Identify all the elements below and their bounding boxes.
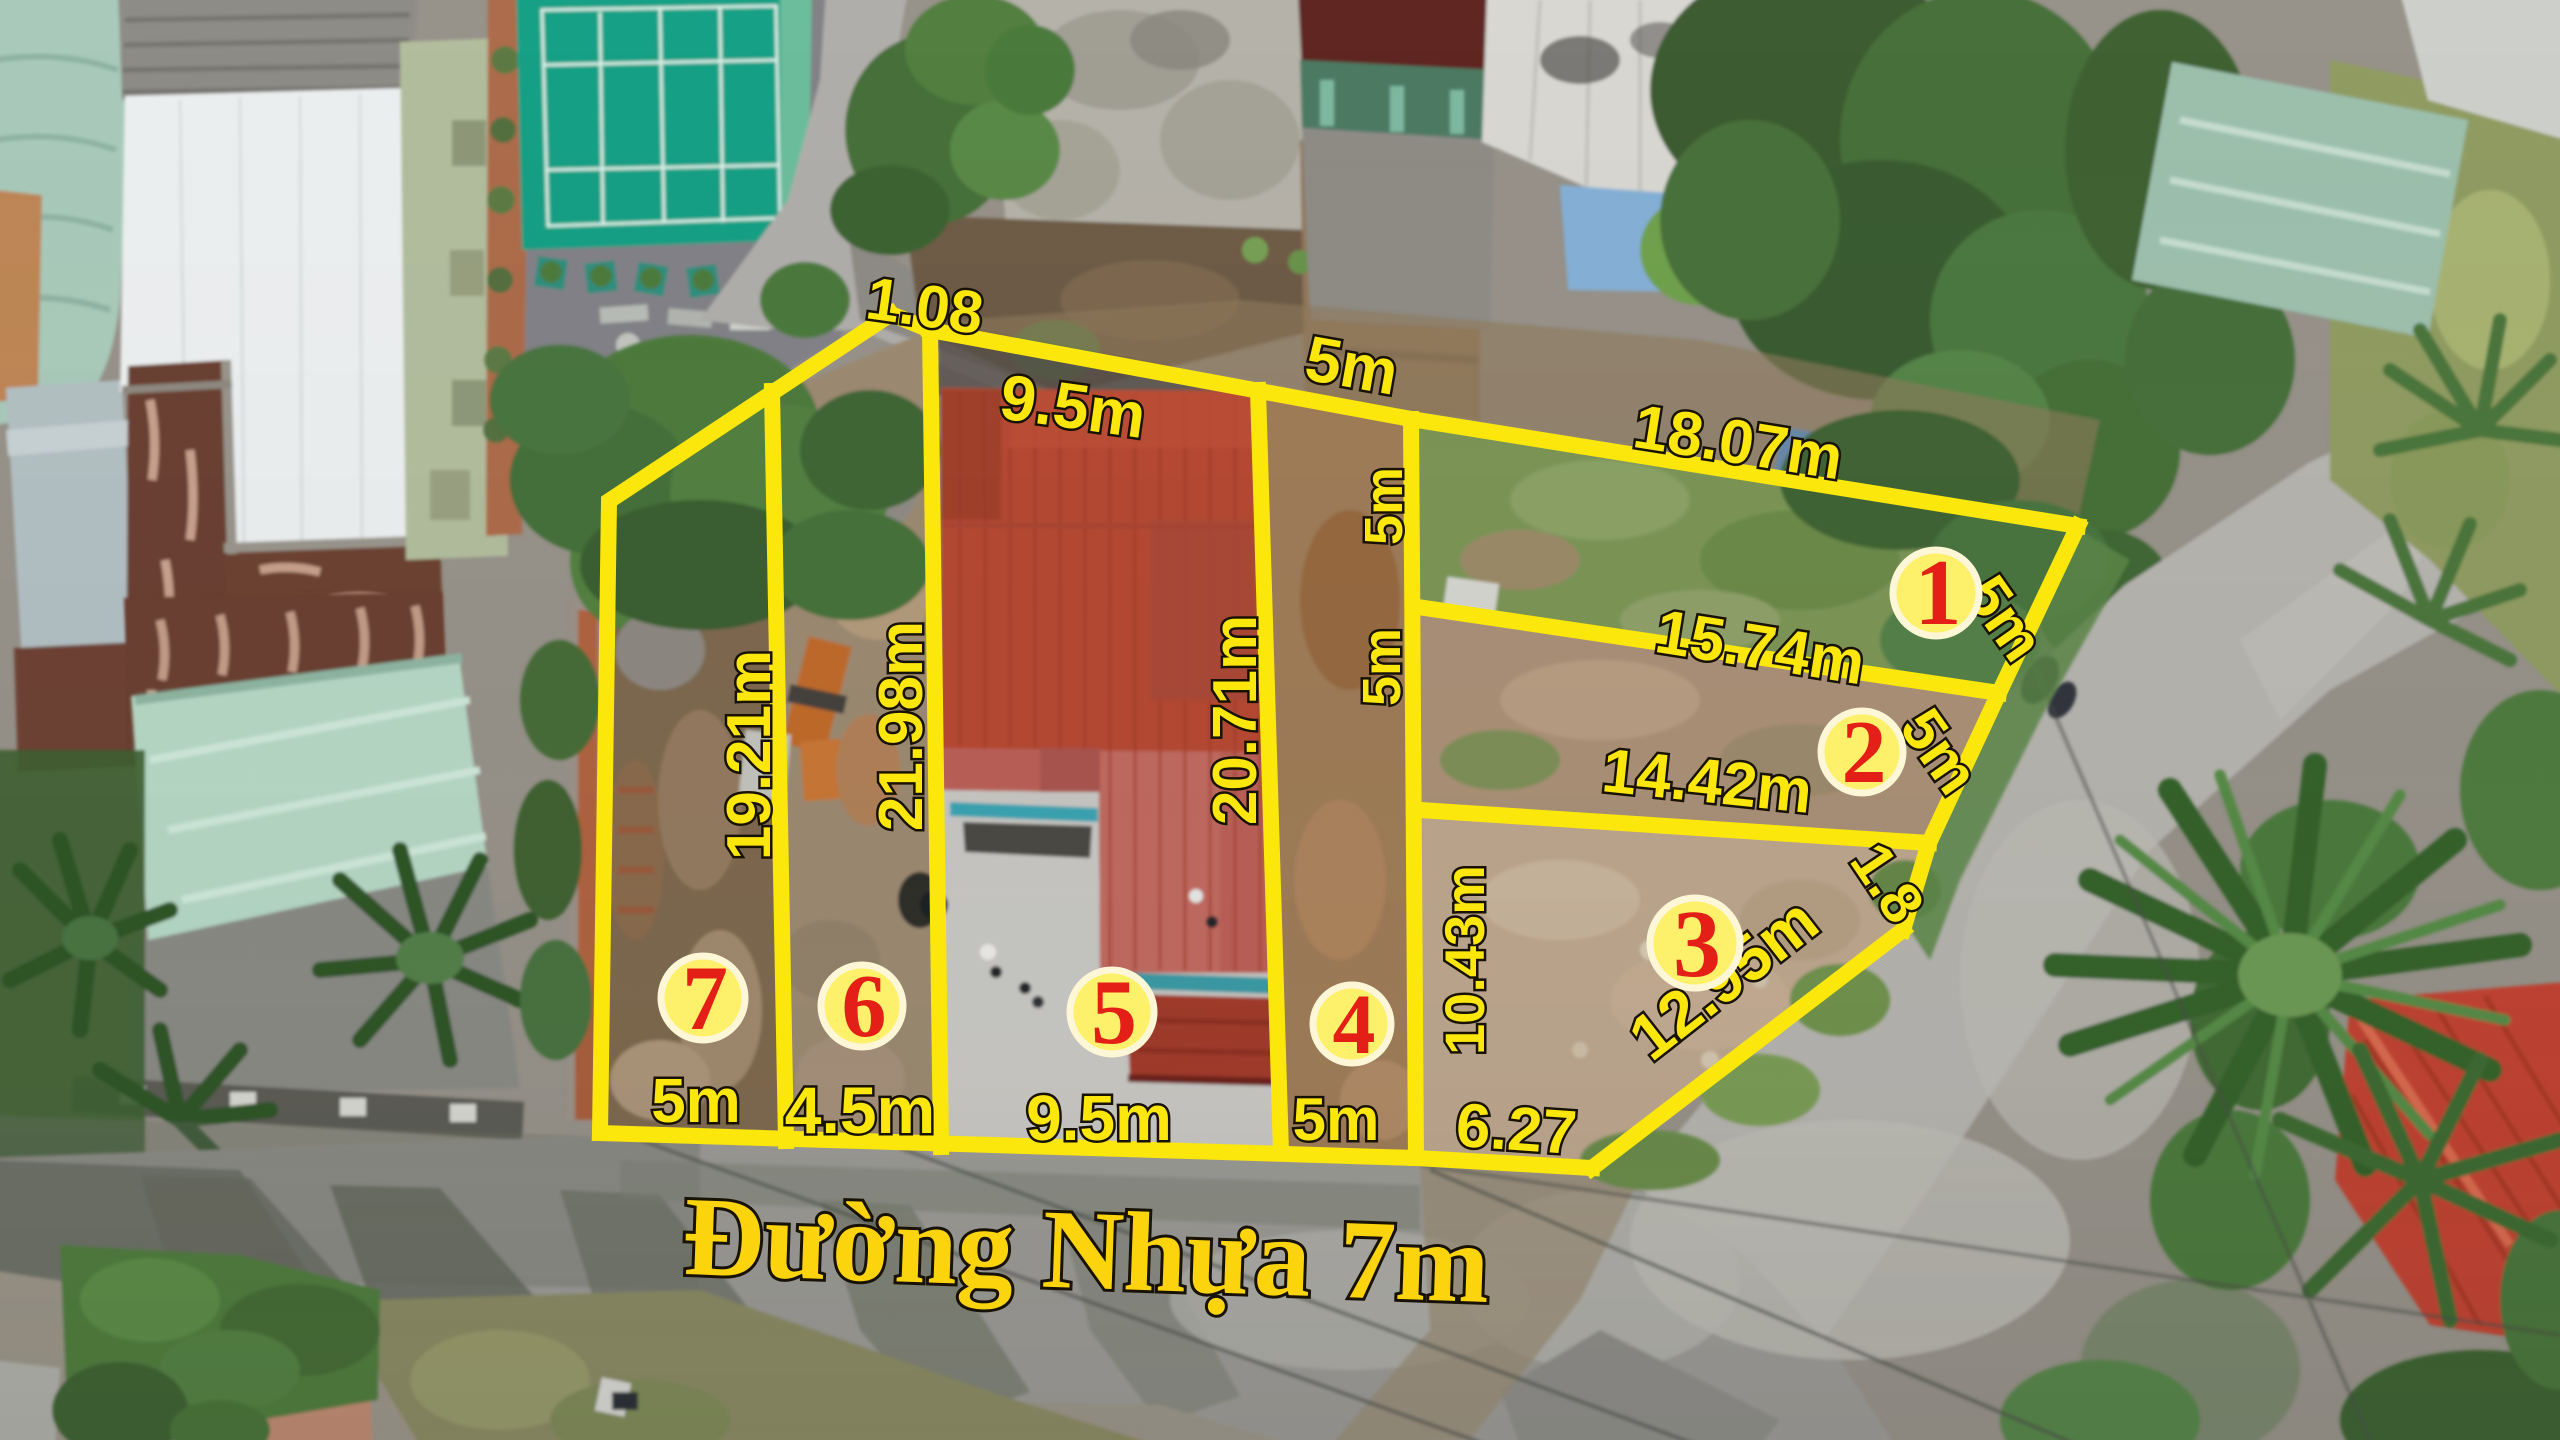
svg-text:6.27: 6.27: [1454, 1091, 1579, 1168]
svg-text:6: 6: [842, 957, 887, 1056]
svg-text:2: 2: [1842, 703, 1887, 802]
svg-text:5m: 5m: [651, 1067, 741, 1136]
svg-text:5m: 5m: [1293, 1086, 1380, 1153]
svg-text:9.5m: 9.5m: [1026, 1082, 1172, 1154]
svg-text:20.71m: 20.71m: [1201, 615, 1270, 825]
svg-text:3: 3: [1673, 890, 1721, 997]
svg-text:4: 4: [1333, 976, 1376, 1072]
svg-text:21.98m: 21.98m: [867, 621, 936, 831]
svg-text:5m: 5m: [1352, 628, 1412, 706]
svg-text:5m: 5m: [1354, 467, 1414, 545]
svg-text:7: 7: [682, 947, 728, 1049]
svg-text:10.43m: 10.43m: [1433, 865, 1496, 1055]
svg-text:4.5m: 4.5m: [785, 1073, 935, 1147]
svg-text:5: 5: [1091, 961, 1137, 1063]
svg-text:19.21m: 19.21m: [715, 650, 784, 860]
svg-text:1: 1: [1915, 541, 1962, 645]
